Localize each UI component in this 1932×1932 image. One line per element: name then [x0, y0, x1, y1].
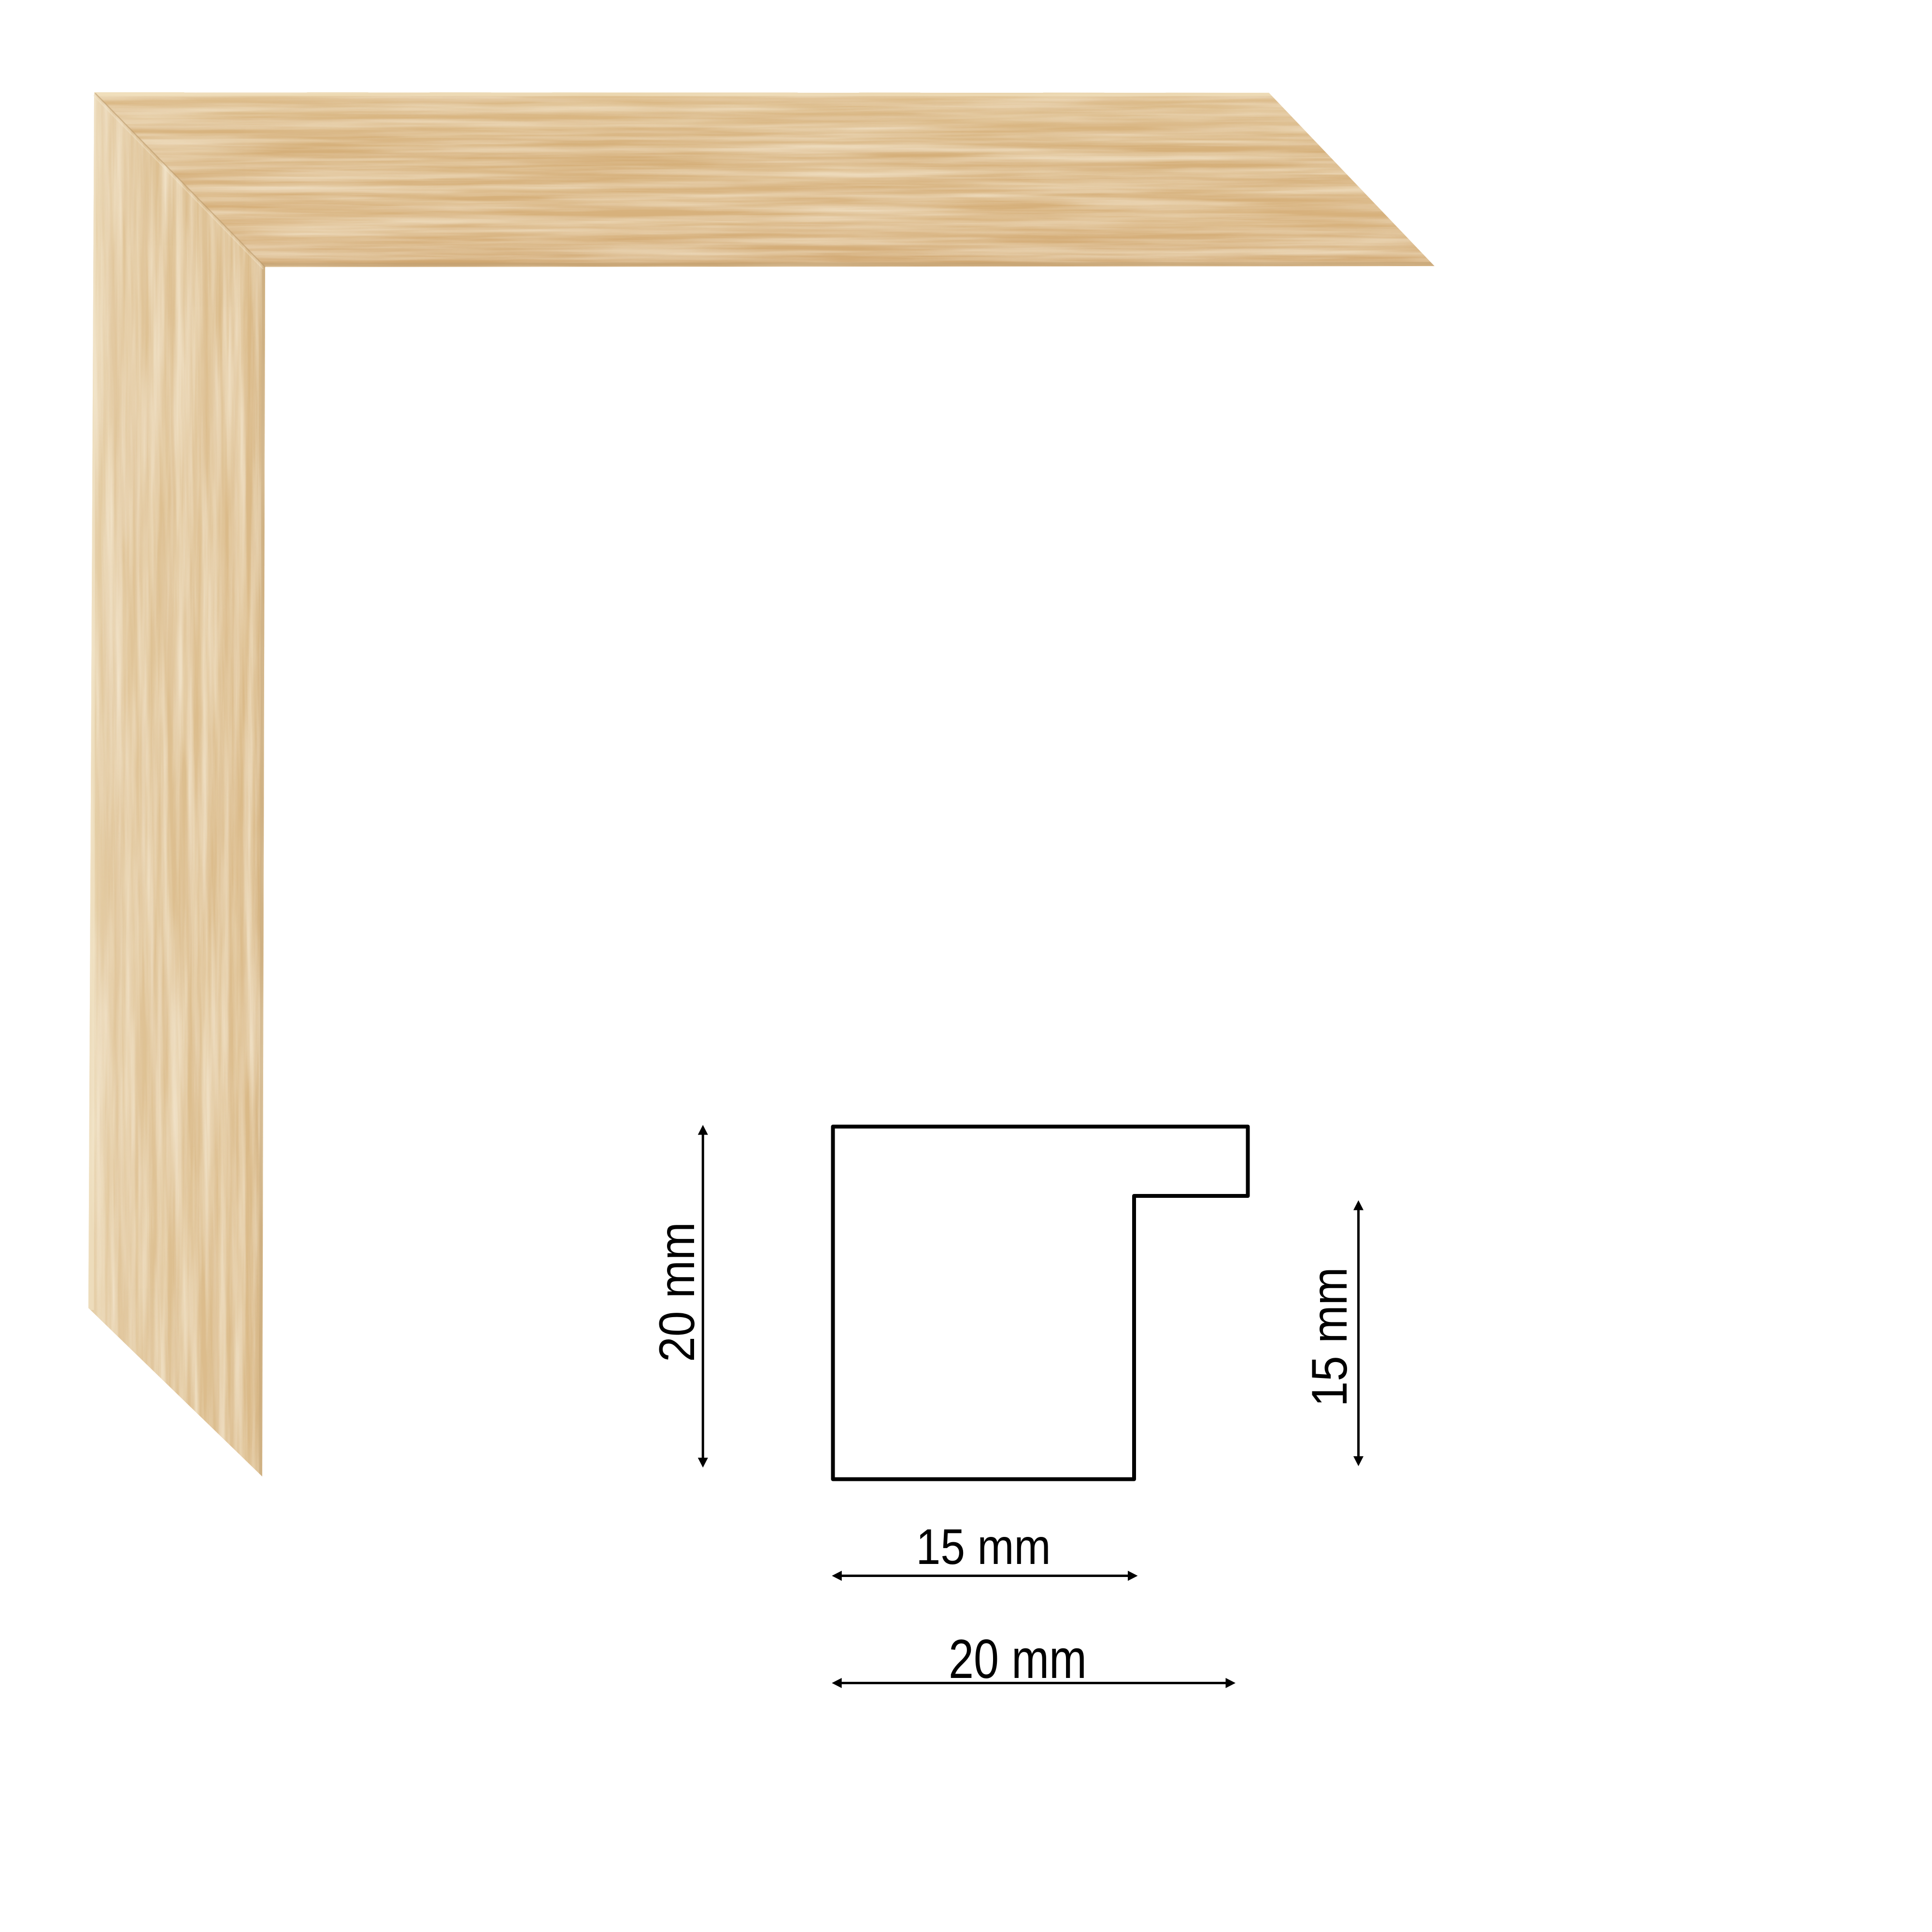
svg-text:15 mm: 15 mm [1302, 1267, 1358, 1407]
svg-text:20 mm: 20 mm [649, 1222, 705, 1362]
svg-text:20 mm: 20 mm [949, 1629, 1087, 1690]
svg-text:15 mm: 15 mm [916, 1519, 1051, 1575]
